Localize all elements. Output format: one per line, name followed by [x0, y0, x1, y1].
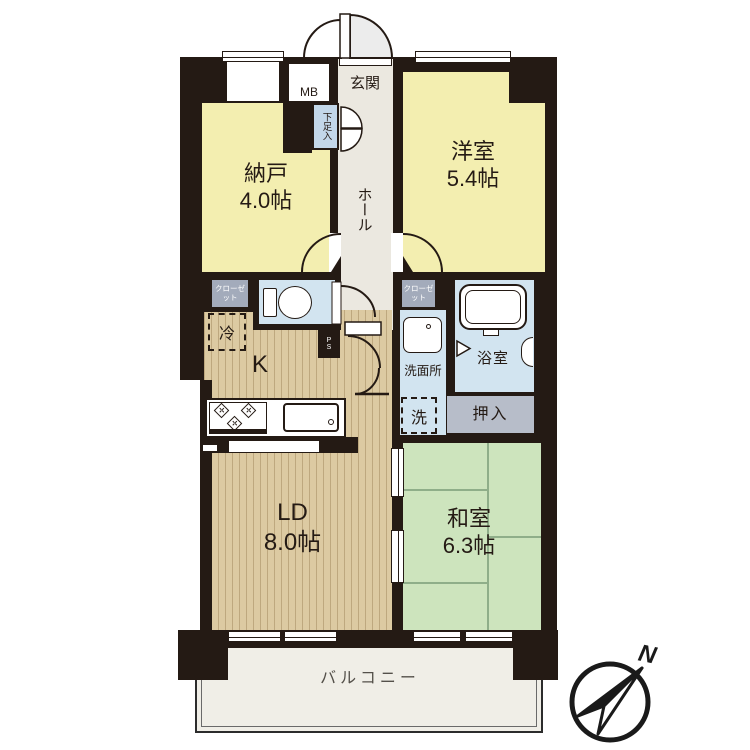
shoe-cabinet-door-top: [341, 107, 362, 128]
senmenjo-label: 洗面所: [399, 363, 447, 380]
yoshitsu-door-hinge: [403, 256, 413, 272]
yoshitsu-label: 洋室 5.4帖: [408, 136, 538, 194]
compass: N: [555, 636, 675, 750]
toilet-door-leaf: [332, 282, 341, 324]
floor-plan: バルコニー クローゼット クローゼット ✛ ✛ ✛ MB: [0, 0, 750, 750]
yokushitsu-label: 浴室: [461, 348, 525, 370]
toilet-door-arc: [341, 286, 375, 317]
ld-label: LD 8.0帖: [230, 493, 355, 563]
kitchen-label: K: [243, 350, 277, 380]
shoe-cabinet-door-bottom: [341, 129, 362, 151]
entrance-door-arc: [350, 15, 392, 58]
kitchen-door-arc-1: [348, 336, 380, 368]
compass-north-label: N: [636, 640, 659, 670]
mb-door-arc: [304, 20, 341, 58]
kitchen-door-arc-2: [355, 368, 379, 394]
washitsu-label: 和室 6.3帖: [404, 496, 534, 568]
hall-label: ホール: [352, 172, 376, 247]
genkan-label: 玄関: [339, 74, 391, 94]
entrance-door-leaf: [340, 14, 350, 58]
yoshitsu-door-gap: [391, 233, 403, 272]
nando-label: 納戸 4.0帖: [206, 158, 326, 216]
oshiire-label: 押入: [447, 396, 534, 433]
kitchen-door-leaf: [345, 322, 381, 335]
